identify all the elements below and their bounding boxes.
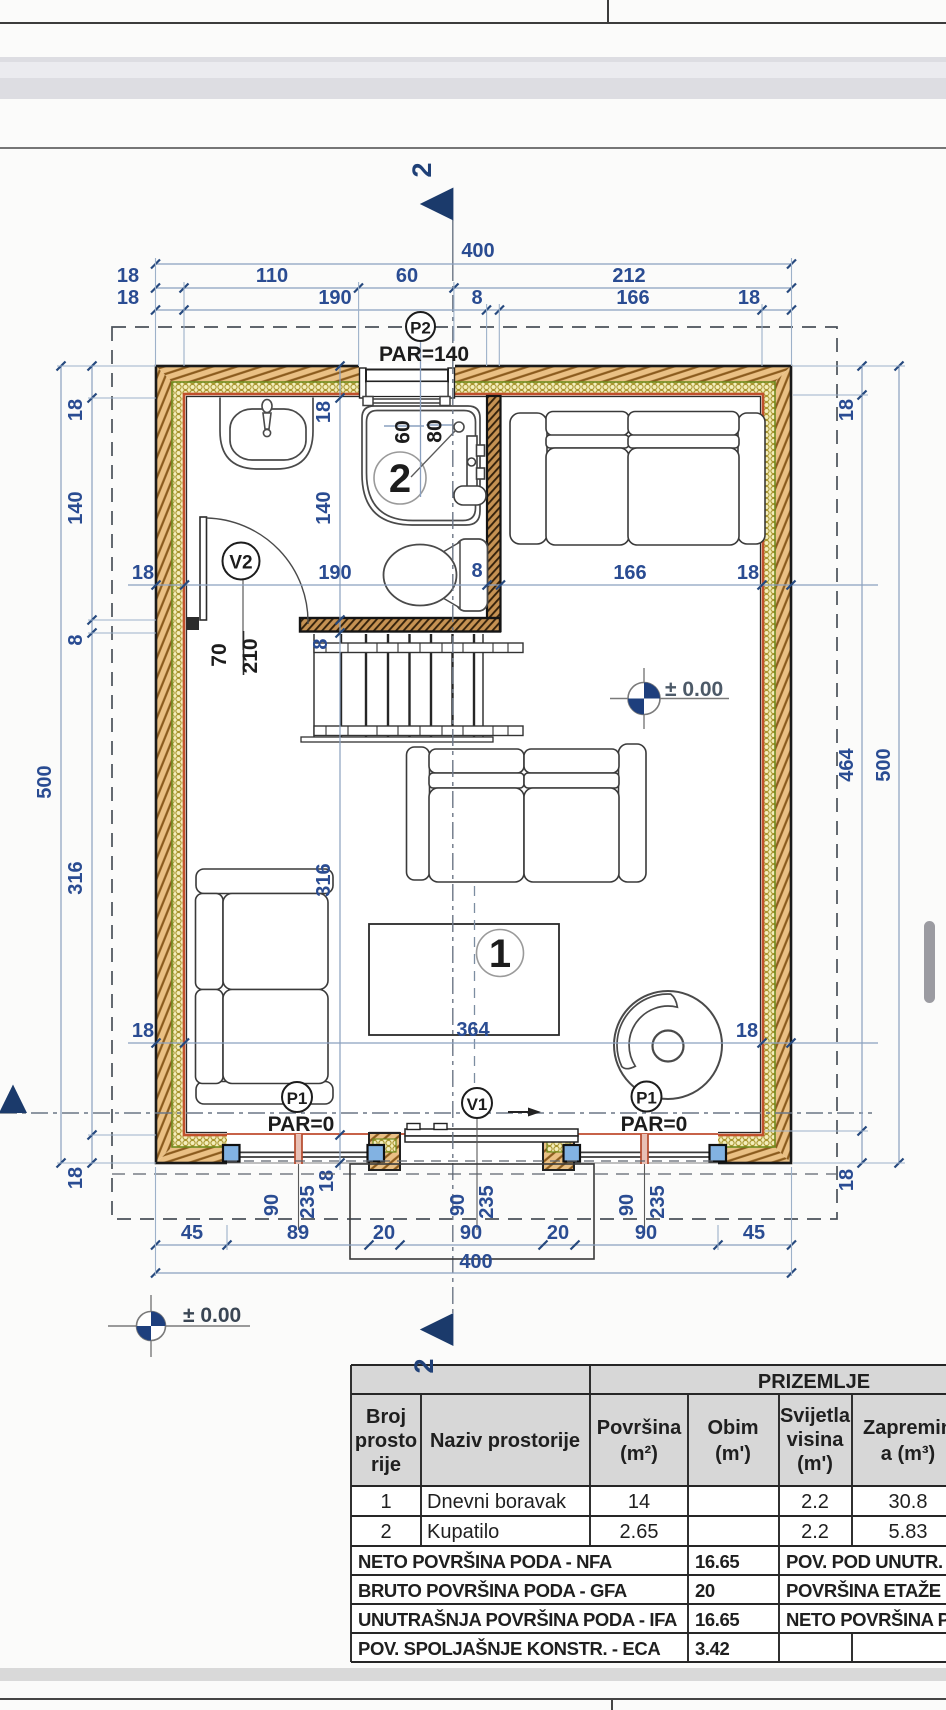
- svg-text:140: 140: [65, 491, 87, 524]
- svg-text:3.42: 3.42: [695, 1638, 730, 1659]
- svg-text:8: 8: [65, 634, 87, 645]
- svg-text:2.2: 2.2: [801, 1491, 829, 1513]
- svg-text:18: 18: [316, 1170, 338, 1192]
- svg-text:18: 18: [836, 399, 858, 421]
- svg-text:rije: rije: [371, 1454, 401, 1476]
- svg-text:190: 190: [318, 562, 351, 584]
- svg-text:235: 235: [476, 1185, 498, 1218]
- svg-text:PAR=140: PAR=140: [379, 343, 469, 366]
- svg-text:16.65: 16.65: [695, 1551, 739, 1572]
- svg-text:18: 18: [313, 401, 335, 423]
- svg-text:400: 400: [461, 240, 494, 262]
- svg-text:Zapremin: Zapremin: [863, 1417, 946, 1439]
- svg-text:90: 90: [460, 1222, 482, 1244]
- svg-text:45: 45: [743, 1222, 765, 1244]
- svg-text:8: 8: [471, 287, 482, 309]
- svg-text:8: 8: [471, 560, 482, 582]
- svg-text:90: 90: [261, 1194, 283, 1216]
- svg-text:500: 500: [34, 765, 56, 798]
- svg-text:2: 2: [389, 457, 411, 501]
- svg-text:166: 166: [613, 562, 646, 584]
- svg-text:30.8: 30.8: [889, 1491, 928, 1513]
- svg-text:18: 18: [65, 1167, 87, 1189]
- svg-text:190: 190: [318, 287, 351, 309]
- svg-text:20: 20: [695, 1580, 715, 1601]
- svg-text:464: 464: [836, 747, 858, 781]
- svg-text:Naziv prostorije: Naziv prostorije: [430, 1430, 580, 1452]
- svg-text:POVRŠINA ETAŽE: POVRŠINA ETAŽE: [786, 1580, 941, 1601]
- svg-text:90: 90: [635, 1222, 657, 1244]
- svg-text:Svijetla: Svijetla: [780, 1405, 851, 1427]
- svg-text:1: 1: [380, 1491, 391, 1513]
- svg-text:Kupatilo: Kupatilo: [427, 1521, 499, 1543]
- svg-text:80: 80: [424, 419, 447, 442]
- svg-text:235: 235: [647, 1185, 669, 1218]
- svg-text:500: 500: [873, 748, 895, 781]
- svg-text:PAR=0: PAR=0: [621, 1113, 688, 1136]
- svg-text:Dnevni boravak: Dnevni boravak: [427, 1491, 567, 1513]
- svg-text:visina: visina: [787, 1429, 845, 1451]
- svg-text:110: 110: [256, 265, 288, 287]
- svg-text:18: 18: [132, 562, 154, 584]
- svg-text:2.65: 2.65: [620, 1521, 659, 1543]
- svg-text:V1: V1: [467, 1095, 488, 1114]
- svg-text:(m'): (m'): [797, 1453, 833, 1475]
- svg-text:± 0.00: ± 0.00: [665, 678, 723, 701]
- svg-text:45: 45: [181, 1222, 203, 1244]
- svg-text:PAR=0: PAR=0: [268, 1113, 335, 1136]
- svg-text:364: 364: [456, 1019, 490, 1041]
- svg-text:16.65: 16.65: [695, 1609, 739, 1630]
- svg-text:140: 140: [313, 491, 335, 524]
- svg-text:90: 90: [616, 1194, 638, 1216]
- svg-text:NETO POVRŠINA PODA: NETO POVRŠINA PODA: [786, 1609, 946, 1630]
- svg-text:BRUTO POVRŠINA PODA - GFA: BRUTO POVRŠINA PODA - GFA: [358, 1580, 627, 1601]
- svg-text:Obim: Obim: [707, 1417, 758, 1439]
- svg-text:POV. SPOLJAŠNJE KONSTR. - ECA: POV. SPOLJAŠNJE KONSTR. - ECA: [358, 1638, 660, 1659]
- svg-text:20: 20: [373, 1222, 395, 1244]
- svg-text:60: 60: [396, 265, 418, 287]
- svg-text:2.2: 2.2: [801, 1521, 829, 1543]
- svg-text:P1: P1: [636, 1089, 657, 1108]
- svg-text:2: 2: [407, 162, 437, 177]
- svg-text:V2: V2: [229, 553, 252, 574]
- svg-text:a (m³): a (m³): [881, 1443, 935, 1465]
- svg-text:316: 316: [313, 863, 335, 896]
- svg-text:18: 18: [132, 1020, 154, 1042]
- svg-text:90: 90: [447, 1194, 469, 1216]
- svg-text:18: 18: [736, 1020, 758, 1042]
- svg-text:PRIZEMLJE: PRIZEMLJE: [758, 1371, 870, 1393]
- svg-text:235: 235: [297, 1185, 319, 1218]
- svg-text:89: 89: [287, 1222, 309, 1244]
- svg-text:± 0.00: ± 0.00: [183, 1304, 241, 1327]
- svg-text:70: 70: [208, 643, 231, 666]
- svg-text:18: 18: [117, 287, 139, 309]
- svg-text:400: 400: [459, 1251, 492, 1273]
- svg-text:212: 212: [612, 265, 645, 287]
- svg-text:(m²): (m²): [620, 1443, 658, 1465]
- svg-text:18: 18: [737, 562, 759, 584]
- svg-text:P2: P2: [410, 319, 431, 338]
- svg-text:Broj: Broj: [366, 1406, 406, 1428]
- svg-text:UNUTRAŠNJA POVRŠINA PODA - IFA: UNUTRAŠNJA POVRŠINA PODA - IFA: [358, 1609, 677, 1630]
- svg-text:18: 18: [117, 265, 139, 287]
- svg-text:166: 166: [616, 287, 649, 309]
- svg-text:(m'): (m'): [715, 1443, 751, 1465]
- svg-text:8: 8: [310, 638, 332, 649]
- svg-text:18: 18: [738, 287, 760, 309]
- svg-text:2: 2: [380, 1521, 391, 1543]
- svg-text:1: 1: [489, 932, 511, 976]
- svg-text:5.83: 5.83: [889, 1521, 928, 1543]
- svg-text:316: 316: [65, 861, 87, 894]
- svg-text:2: 2: [409, 1358, 439, 1373]
- svg-text:60: 60: [392, 420, 415, 443]
- svg-text:14: 14: [628, 1491, 650, 1513]
- svg-text:20: 20: [547, 1222, 569, 1244]
- svg-text:210: 210: [239, 638, 262, 673]
- svg-text:18: 18: [65, 399, 87, 421]
- svg-text:POV. POD UNUTR.: POV. POD UNUTR.: [786, 1551, 943, 1572]
- svg-text:prosto: prosto: [355, 1430, 417, 1452]
- svg-text:Površina: Površina: [597, 1417, 682, 1439]
- svg-text:NETO POVRŠINA PODA - NFA: NETO POVRŠINA PODA - NFA: [358, 1551, 612, 1572]
- svg-text:18: 18: [836, 1169, 858, 1191]
- svg-text:P1: P1: [287, 1089, 308, 1108]
